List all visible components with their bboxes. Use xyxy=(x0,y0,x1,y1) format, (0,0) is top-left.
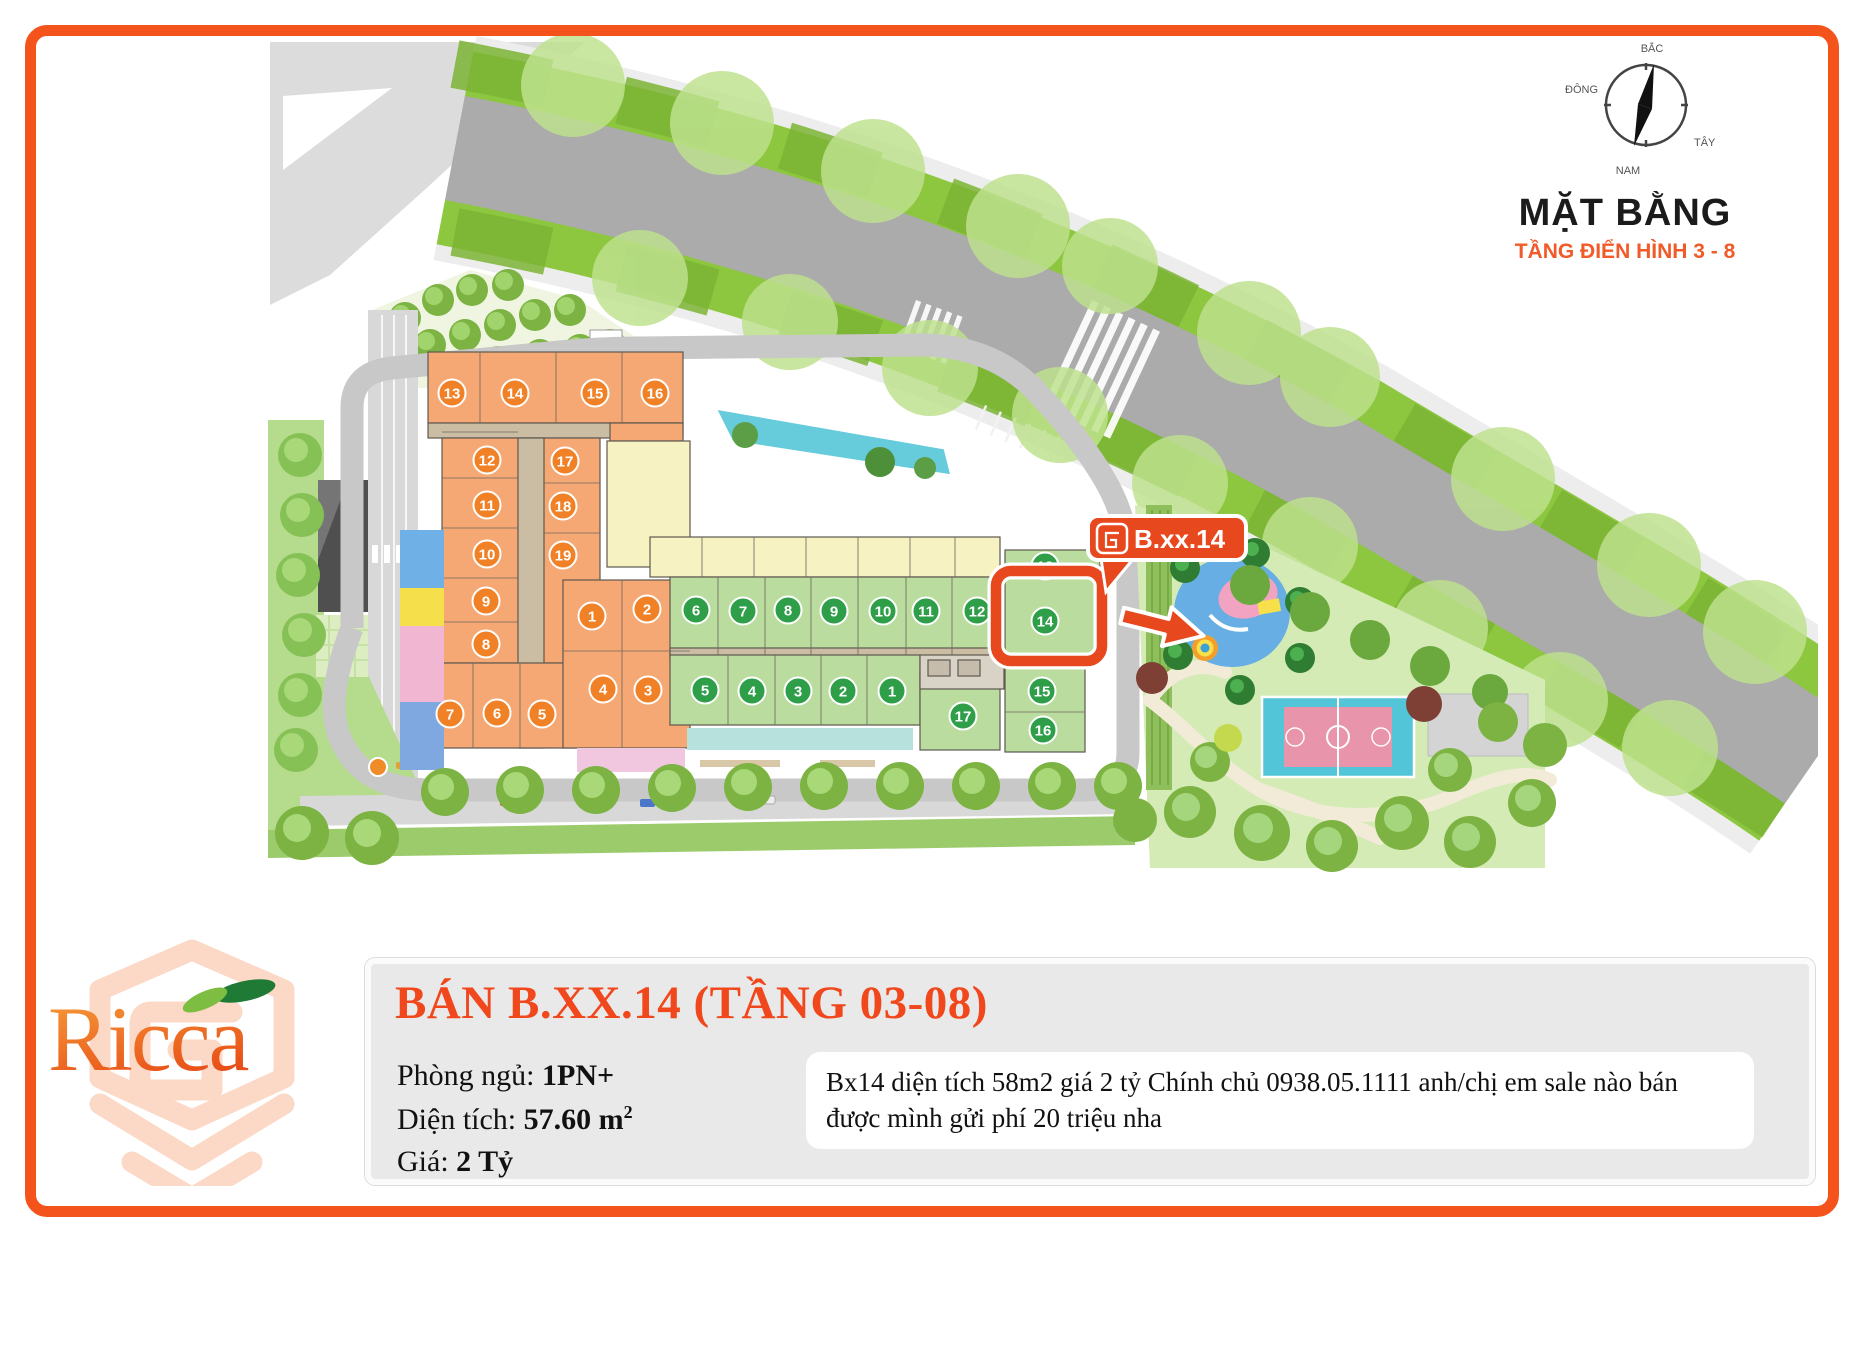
unit-badge-green-7: 7 xyxy=(730,598,757,625)
area-label: Diện tích: xyxy=(397,1103,516,1136)
compass-west: TÂY xyxy=(1694,136,1716,149)
unit-badge-green-10: 10 xyxy=(870,598,897,625)
svg-text:14: 14 xyxy=(507,386,524,403)
price-value: 2 Tỷ xyxy=(456,1145,513,1178)
svg-text:3: 3 xyxy=(794,684,802,701)
page-subtitle: TẦNG ĐIỂN HÌNH 3 - 8 xyxy=(1430,240,1820,264)
area-unit: m xyxy=(599,1103,624,1136)
svg-text:9: 9 xyxy=(482,594,490,611)
unit-badge-orange-3: 3 xyxy=(635,677,662,704)
unit-badge-orange-17: 17 xyxy=(552,448,579,475)
svg-text:8: 8 xyxy=(482,637,490,654)
svg-text:16: 16 xyxy=(1035,723,1052,740)
area-spec: Diện tích: 57.60 m2 xyxy=(397,1102,633,1137)
compass-east: ĐÔNG xyxy=(1565,83,1598,96)
unit-badge-green-3: 3 xyxy=(785,678,812,705)
svg-text:5: 5 xyxy=(701,683,709,700)
bedroom-spec: Phòng ngủ: 1PN+ xyxy=(397,1059,614,1093)
unit-badge-green-9: 9 xyxy=(821,598,848,625)
svg-text:7: 7 xyxy=(446,707,454,724)
unit-badge-orange-13: 13 xyxy=(439,380,466,407)
svg-text:14: 14 xyxy=(1037,614,1054,631)
svg-text:11: 11 xyxy=(918,604,934,621)
listing-panel: BÁN B.XX.14 (TẦNG 03-08) Phòng ngủ: 1PN+… xyxy=(365,958,1815,1185)
unit-badge-orange-14: 14 xyxy=(502,380,529,407)
basketball-court xyxy=(1262,697,1414,777)
price-spec: Giá: 2 Tỷ xyxy=(397,1145,513,1179)
seller-note: Bx14 diện tích 58m2 giá 2 tỷ Chính chủ 0… xyxy=(806,1052,1754,1149)
svg-text:6: 6 xyxy=(692,603,700,620)
bedroom-value: 1PN+ xyxy=(542,1059,614,1092)
unit-badge-green-6: 6 xyxy=(683,597,710,624)
listing-title: BÁN B.XX.14 (TẦNG 03-08) xyxy=(395,976,988,1030)
svg-text:17: 17 xyxy=(955,709,972,726)
unit-badge-orange-4: 4 xyxy=(590,676,617,703)
unit-badge-orange-2: 2 xyxy=(634,596,661,623)
unit-badge-orange-7: 7 xyxy=(437,701,464,728)
unit-badge-green-5: 5 xyxy=(692,677,719,704)
svg-text:2: 2 xyxy=(643,602,651,619)
unit-badge-green-11: 11 xyxy=(913,598,940,625)
unit-badge-green-16: 16 xyxy=(1030,717,1057,744)
unit-badge-green-12: 12 xyxy=(964,598,991,625)
svg-text:10: 10 xyxy=(875,604,892,621)
compass-icon: BẮC ĐÔNG TÂY NAM xyxy=(1565,42,1716,177)
unit-badge-green-8: 8 xyxy=(775,597,802,624)
svg-text:8: 8 xyxy=(784,603,792,620)
svg-text:12: 12 xyxy=(479,453,496,470)
svg-text:6: 6 xyxy=(493,706,501,723)
bedroom-label: Phòng ngủ: xyxy=(397,1059,535,1092)
compass-south: NAM xyxy=(1616,165,1640,177)
unit-badge-orange-8: 8 xyxy=(473,631,500,658)
swimming-pool xyxy=(715,408,952,479)
unit-badge-orange-5: 5 xyxy=(529,701,556,728)
svg-text:3: 3 xyxy=(644,683,652,700)
unit-badge-orange-19: 19 xyxy=(550,542,577,569)
compass-north: BẮC xyxy=(1641,42,1664,55)
unit-badge-green-14: 14 xyxy=(1032,608,1059,635)
unit-badge-orange-10: 10 xyxy=(474,541,501,568)
unit-badge-green-1: 1 xyxy=(879,678,906,705)
unit-badge-orange-18: 18 xyxy=(550,493,577,520)
unit-badge-orange-12: 12 xyxy=(474,447,501,474)
svg-text:17: 17 xyxy=(557,454,574,471)
unit-badge-orange-15: 15 xyxy=(582,380,609,407)
svg-text:15: 15 xyxy=(587,386,604,403)
svg-text:2: 2 xyxy=(839,684,847,701)
unit-badge-orange-6: 6 xyxy=(484,700,511,727)
unit-badge-green-17: 17 xyxy=(950,703,977,730)
callout-label: B.xx.14 xyxy=(1134,524,1226,554)
svg-text:19: 19 xyxy=(555,548,572,565)
brand-name: Ricca xyxy=(48,988,249,1090)
svg-text:11: 11 xyxy=(479,498,495,515)
svg-text:10: 10 xyxy=(479,547,496,564)
svg-text:13: 13 xyxy=(444,386,461,403)
price-label: Giá: xyxy=(397,1145,449,1178)
svg-text:18: 18 xyxy=(555,499,572,516)
svg-text:5: 5 xyxy=(538,707,546,724)
flyer: 1314151612171118101998124376567891011121… xyxy=(0,0,1864,1366)
svg-text:7: 7 xyxy=(739,604,747,621)
unit-badge-green-4: 4 xyxy=(739,678,766,705)
area-value: 57.60 xyxy=(524,1103,592,1136)
unit-badge-orange-9: 9 xyxy=(473,588,500,615)
unit-badge-orange-11: 11 xyxy=(474,492,501,519)
brand-logo: Ricca xyxy=(48,950,284,1198)
unit-badge-green-2: 2 xyxy=(830,678,857,705)
svg-text:12: 12 xyxy=(969,604,986,621)
svg-text:16: 16 xyxy=(647,386,664,403)
unit-badge-orange-1: 1 xyxy=(579,603,606,630)
svg-text:4: 4 xyxy=(599,682,608,699)
page-title: MẶT BẰNG xyxy=(1430,192,1820,235)
unit-badge-orange-16: 16 xyxy=(642,380,669,407)
svg-text:15: 15 xyxy=(1034,684,1051,701)
svg-text:1: 1 xyxy=(888,684,896,701)
unit-badge-green-15: 15 xyxy=(1029,678,1056,705)
svg-text:1: 1 xyxy=(588,609,596,626)
svg-text:9: 9 xyxy=(830,604,838,621)
svg-text:4: 4 xyxy=(748,684,757,701)
roundabout xyxy=(369,758,387,776)
